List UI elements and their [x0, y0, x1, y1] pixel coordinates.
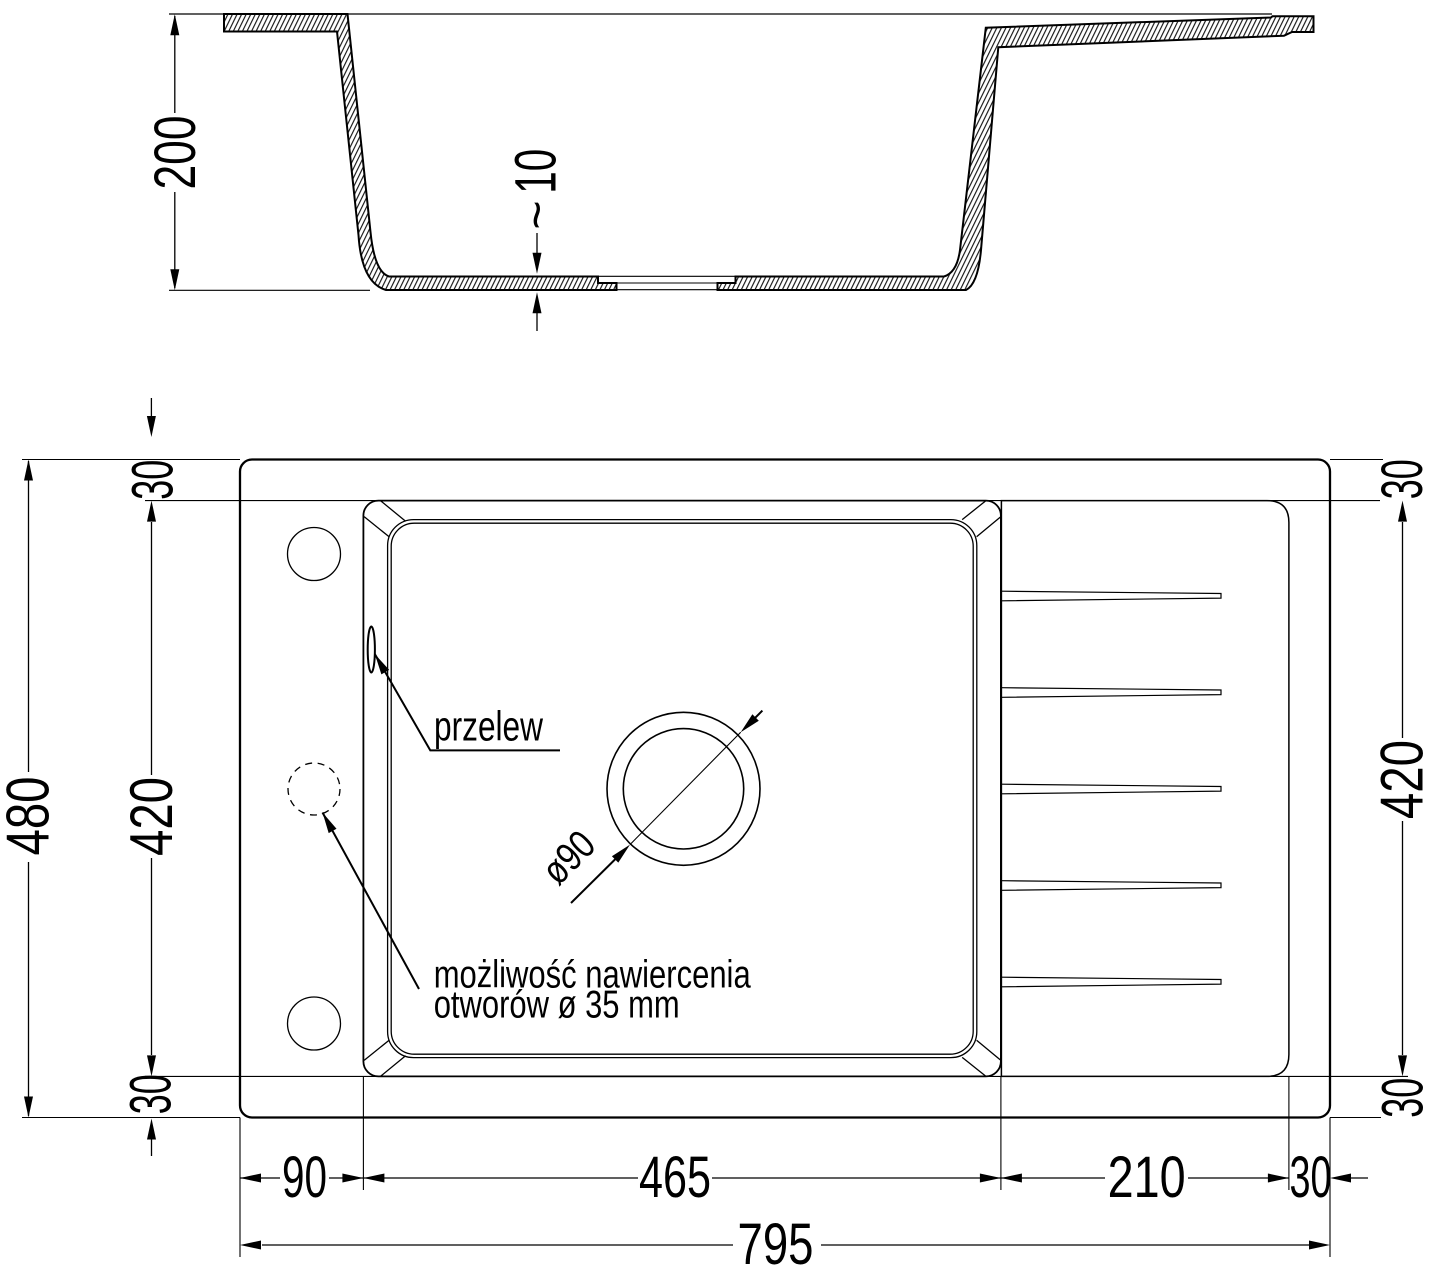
svg-text:10: 10	[504, 149, 569, 194]
svg-text:795: 795	[738, 1212, 814, 1277]
svg-text:90: 90	[282, 1145, 327, 1210]
svg-text:otworów ø 35 mm: otworów ø 35 mm	[434, 983, 680, 1026]
svg-text:30: 30	[1370, 1078, 1435, 1118]
svg-text:420: 420	[118, 777, 185, 856]
svg-text:480: 480	[0, 777, 62, 856]
svg-text:200: 200	[143, 116, 208, 190]
svg-text:30: 30	[1290, 1145, 1332, 1210]
svg-text:~: ~	[509, 200, 565, 229]
svg-text:ø90: ø90	[533, 822, 604, 893]
svg-text:210: 210	[1108, 1145, 1186, 1210]
svg-text:465: 465	[639, 1145, 711, 1210]
svg-text:przelew: przelew	[434, 703, 543, 750]
svg-text:30: 30	[1370, 459, 1435, 499]
svg-text:30: 30	[119, 1074, 184, 1114]
svg-text:30: 30	[120, 460, 185, 500]
svg-text:420: 420	[1369, 740, 1436, 819]
